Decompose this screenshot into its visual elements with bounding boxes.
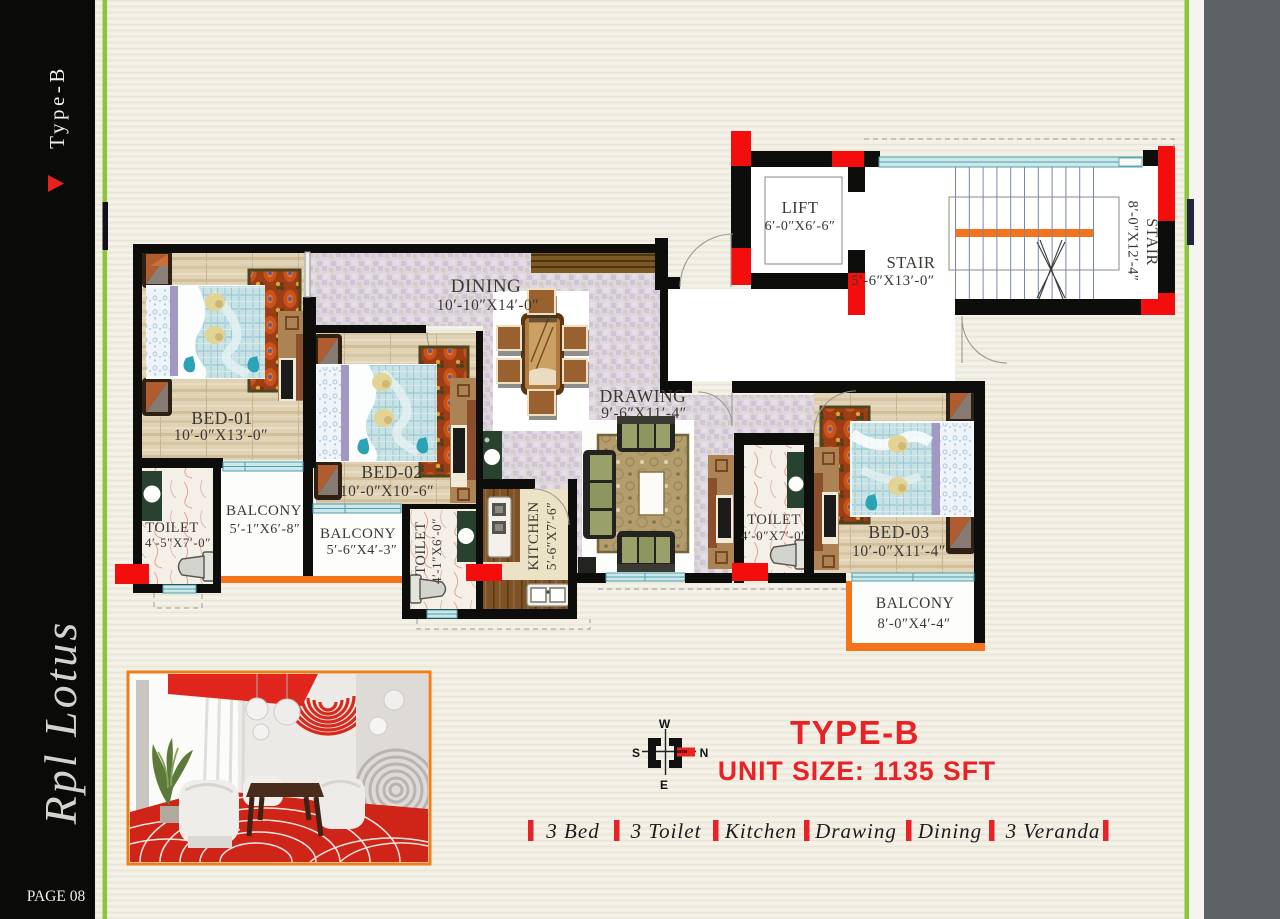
svg-text:N: N	[700, 746, 709, 760]
svg-text:KITCHEN: KITCHEN	[526, 501, 542, 570]
svg-text:BED-01: BED-01	[191, 408, 252, 428]
svg-text:8′-0″X12′-4″: 8′-0″X12′-4″	[1125, 201, 1141, 282]
svg-text:10′-0″X10′-6″: 10′-0″X10′-6″	[340, 483, 434, 500]
svg-text:4′-5″X7′-0″: 4′-5″X7′-0″	[145, 535, 211, 550]
svg-text:W: W	[659, 717, 671, 731]
svg-text:5′-6″X13′-0″: 5′-6″X13′-0″	[851, 273, 934, 289]
svg-text:LIFT: LIFT	[782, 198, 819, 217]
svg-text:S: S	[632, 746, 640, 760]
svg-text:10′-0″X11′-4″: 10′-0″X11′-4″	[852, 543, 946, 560]
svg-text:UNIT SIZE: 1135 SFT: UNIT SIZE: 1135 SFT	[718, 756, 996, 786]
svg-text:Rpl Lotus: Rpl Lotus	[35, 620, 86, 826]
svg-text:Type-B: Type-B	[45, 65, 69, 149]
svg-text:10′-10″X14′-0″: 10′-10″X14′-0″	[437, 297, 539, 314]
svg-text:6′-0″X6′-6″: 6′-0″X6′-6″	[765, 219, 836, 234]
svg-text:TOILET: TOILET	[747, 512, 800, 528]
svg-text:BALCONY: BALCONY	[876, 595, 954, 612]
svg-text:STAIR: STAIR	[887, 253, 936, 272]
svg-text:STAIR: STAIR	[1143, 218, 1160, 265]
svg-text:E: E	[660, 778, 668, 792]
svg-text:5′-1″X6′-8″: 5′-1″X6′-8″	[230, 522, 301, 537]
svg-text:BED-02: BED-02	[361, 462, 422, 482]
svg-text:BALCONY: BALCONY	[226, 503, 302, 519]
svg-text:Drawing: Drawing	[814, 819, 897, 843]
svg-text:3 Toilet: 3 Toilet	[630, 819, 702, 843]
svg-text:4′-1″X6′-0″: 4′-1″X6′-0″	[429, 518, 444, 584]
svg-text:PAGE 08: PAGE 08	[27, 888, 86, 905]
svg-text:BALCONY: BALCONY	[320, 526, 396, 542]
svg-text:4′-0″X7′-0″: 4′-0″X7′-0″	[741, 528, 807, 543]
svg-text:BED-03: BED-03	[868, 522, 929, 542]
svg-text:3 Veranda: 3 Veranda	[1005, 819, 1101, 843]
svg-text:Dining: Dining	[917, 819, 982, 843]
svg-text:Kitchen: Kitchen	[724, 819, 797, 843]
svg-text:9′-6″X11′-4″: 9′-6″X11′-4″	[601, 405, 686, 422]
svg-text:TOILET: TOILET	[145, 520, 198, 536]
svg-text:8′-0″X4′-4″: 8′-0″X4′-4″	[877, 616, 950, 632]
svg-text:10′-0″X13′-0″: 10′-0″X13′-0″	[174, 427, 268, 444]
svg-text:DINING: DINING	[451, 276, 522, 297]
svg-text:TOILET: TOILET	[413, 521, 429, 574]
svg-text:5′-6″X7′-6″: 5′-6″X7′-6″	[544, 502, 559, 570]
svg-text:5′-6″X4′-3″: 5′-6″X4′-3″	[327, 543, 398, 558]
svg-text:TYPE-B: TYPE-B	[790, 714, 920, 751]
svg-text:3 Bed: 3 Bed	[545, 819, 599, 843]
svg-text:DRAWING: DRAWING	[600, 386, 687, 406]
